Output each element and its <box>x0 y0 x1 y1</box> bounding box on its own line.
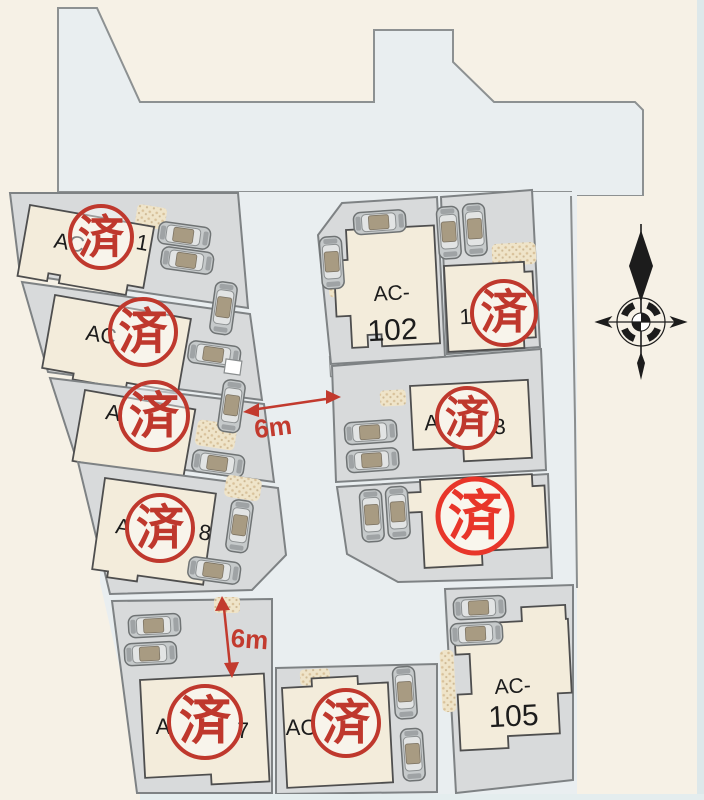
lot-ne1: 1 済 <box>436 190 540 354</box>
lot-label: AC- <box>494 674 531 699</box>
sold-stamp: 済 <box>70 206 132 268</box>
lot-label: AC- <box>373 281 410 306</box>
svg-text:済: 済 <box>481 286 529 341</box>
svg-text:済: 済 <box>78 210 125 264</box>
road-width-label: 6m <box>252 410 293 444</box>
sold-stamp: 済 <box>120 382 188 450</box>
car-icon <box>319 236 345 289</box>
svg-text:済: 済 <box>322 695 371 751</box>
edge-strip-right <box>697 0 704 800</box>
car-icon <box>344 419 397 445</box>
svg-text:済: 済 <box>448 485 503 548</box>
car-icon <box>353 209 406 235</box>
svg-text:済: 済 <box>136 500 185 556</box>
sold-stamp: 済 <box>110 299 176 365</box>
lot-se105: AC- 105 <box>439 585 574 793</box>
car-icon <box>436 206 462 259</box>
lot-e4: 済 <box>337 474 552 582</box>
lot-nw4: A 8 済 <box>78 462 286 594</box>
gravel-patch <box>380 389 407 406</box>
car-icon <box>400 728 426 781</box>
car-icon <box>462 203 488 256</box>
car-icon <box>128 613 181 638</box>
svg-text:済: 済 <box>129 387 180 445</box>
site-plan-svg: AC 1 済 AC 済 A 済 <box>0 0 704 800</box>
lot-c102: AC- 102 <box>318 197 445 364</box>
road-width-label: 6m <box>230 623 270 656</box>
utility-box <box>224 359 242 375</box>
sold-stamp: 済 <box>169 686 241 758</box>
car-icon <box>392 666 418 719</box>
lot-e3: A 3 済 <box>332 349 546 482</box>
sold-stamp: 済 <box>472 281 536 345</box>
car-icon <box>385 486 411 539</box>
sold-stamp: 済 <box>437 388 497 448</box>
car-icon <box>450 621 503 646</box>
edge-strip-bottom <box>140 794 704 800</box>
lot-label: 105 <box>488 699 540 735</box>
car-icon <box>346 447 399 473</box>
lot-label: 102 <box>367 313 419 349</box>
car-icon <box>124 641 177 666</box>
sold-stamp: 済 <box>438 479 512 553</box>
svg-text:済: 済 <box>118 304 168 361</box>
svg-text:済: 済 <box>179 692 232 752</box>
svg-text:済: 済 <box>445 393 490 444</box>
car-icon <box>359 489 385 542</box>
lot-s2: AC 済 <box>276 664 437 794</box>
sold-stamp: 済 <box>313 690 379 756</box>
site-plan: AC 1 済 AC 済 A 済 <box>0 0 704 800</box>
car-icon <box>453 595 506 620</box>
sold-stamp: 済 <box>127 495 193 561</box>
